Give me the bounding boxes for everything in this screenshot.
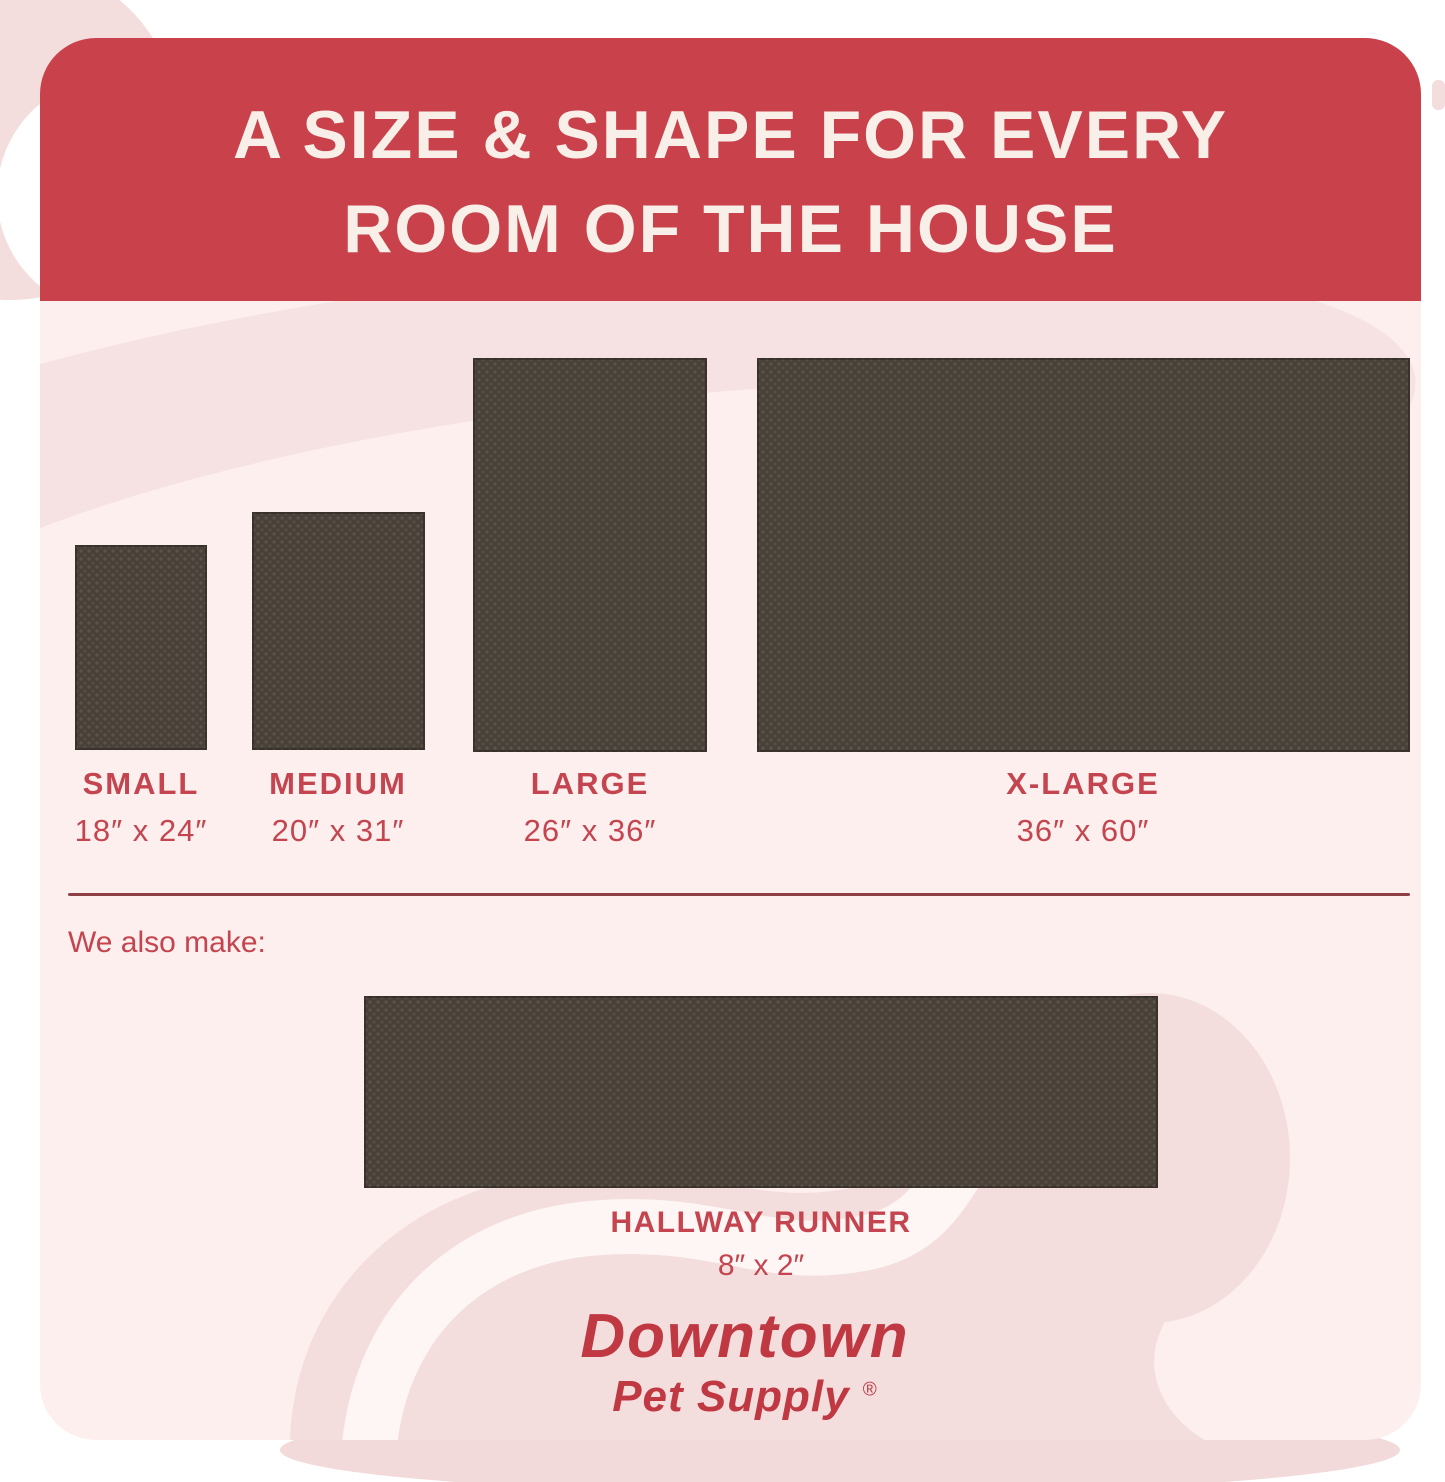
runner-name: HALLWAY RUNNER bbox=[561, 1206, 961, 1240]
size-dims: 26″ x 36″ bbox=[490, 813, 690, 849]
size-name: LARGE bbox=[490, 766, 690, 802]
page-title: A SIZE & SHAPE FOR EVERY ROOM OF THE HOU… bbox=[233, 89, 1228, 277]
infographic-page: { "header": { "title_line1": "A SIZE & S… bbox=[0, 0, 1445, 1482]
brand-tagline: Pet Supply ® bbox=[430, 1372, 1060, 1422]
brand-tagline-text: Pet Supply bbox=[612, 1372, 849, 1421]
size-label-medium: MEDIUM 20″ x 31″ bbox=[238, 766, 438, 849]
rug-swatch-small bbox=[75, 545, 207, 750]
also-make-label: We also make: bbox=[68, 926, 266, 960]
size-label-xlarge: X-LARGE 36″ x 60″ bbox=[983, 766, 1183, 849]
size-dims: 20″ x 31″ bbox=[238, 813, 438, 849]
rug-swatch-medium bbox=[252, 512, 425, 750]
size-label-small: SMALL 18″ x 24″ bbox=[41, 766, 241, 849]
page-title-line1: A SIZE & SHAPE FOR EVERY bbox=[233, 89, 1228, 183]
runner-label: HALLWAY RUNNER 8″ x 2″ bbox=[561, 1206, 961, 1283]
size-name: SMALL bbox=[41, 766, 241, 802]
size-dims: 18″ x 24″ bbox=[41, 813, 241, 849]
brand-name: Downtown bbox=[430, 1306, 1060, 1368]
page-title-line2: ROOM OF THE HOUSE bbox=[233, 183, 1228, 277]
runner-dims: 8″ x 2″ bbox=[561, 1249, 961, 1283]
section-divider bbox=[68, 893, 1410, 896]
size-name: X-LARGE bbox=[983, 766, 1183, 802]
header-banner: A SIZE & SHAPE FOR EVERY ROOM OF THE HOU… bbox=[40, 38, 1421, 301]
edge-sliver-shape bbox=[1432, 80, 1445, 110]
registered-trademark-icon: ® bbox=[863, 1379, 878, 1400]
rug-swatch-hallway-runner bbox=[364, 996, 1158, 1188]
rug-swatch-large bbox=[473, 358, 707, 752]
infographic-card: A SIZE & SHAPE FOR EVERY ROOM OF THE HOU… bbox=[40, 38, 1421, 1440]
rug-swatch-xlarge bbox=[757, 358, 1410, 752]
brand-logo: Downtown Pet Supply ® bbox=[430, 1306, 1060, 1422]
size-label-large: LARGE 26″ x 36″ bbox=[490, 766, 690, 849]
size-dims: 36″ x 60″ bbox=[983, 813, 1183, 849]
size-name: MEDIUM bbox=[238, 766, 438, 802]
